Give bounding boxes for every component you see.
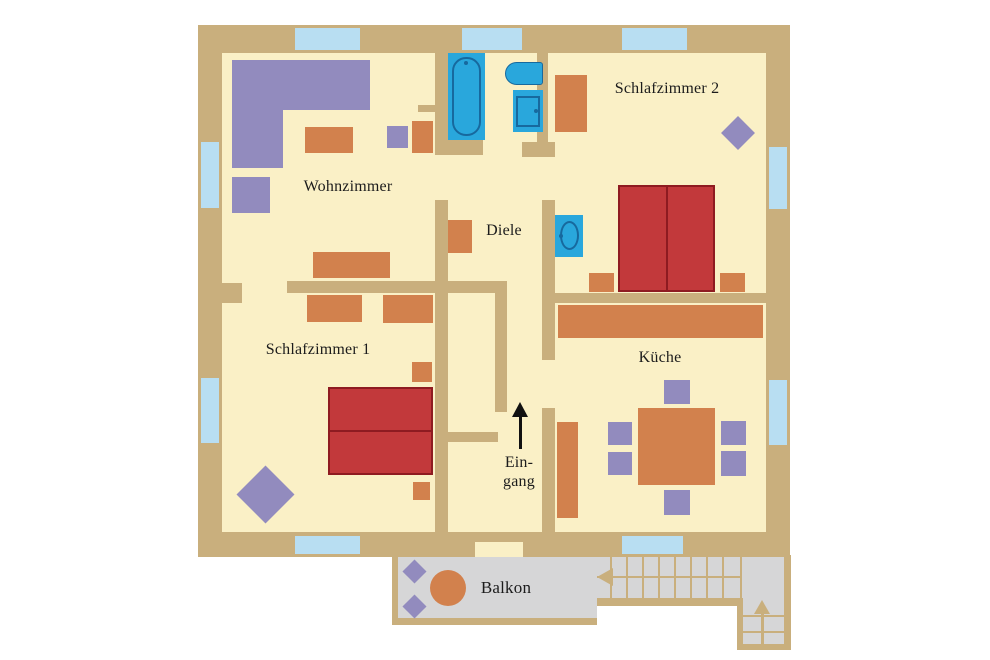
bedroom2-nightstand-left — [589, 273, 614, 292]
tv — [387, 126, 408, 148]
kitchen-counter — [558, 305, 763, 338]
bathtub — [448, 53, 485, 140]
window-top-bedroom2 — [622, 28, 687, 50]
toilet — [505, 62, 543, 85]
wall-bedroom2-west — [542, 200, 555, 303]
bedroom2-wardrobe — [555, 75, 587, 132]
window-left-livingroom — [201, 142, 219, 208]
eingang-line1: Ein- — [503, 453, 535, 472]
outer-wall-right — [766, 25, 790, 557]
wall-bathroom-bottom-left — [443, 140, 483, 155]
stairs-midline — [597, 576, 742, 578]
room-label-schlafzimmer2: Schlafzimmer 2 — [615, 80, 720, 98]
window-left-bedroom1 — [201, 378, 219, 443]
window-bottom-kitchen — [622, 536, 683, 554]
window-top-bathroom — [462, 28, 522, 50]
bedroom2-double-bed — [618, 185, 715, 292]
stairs-direction-arrow-icon — [597, 568, 613, 586]
window-top-livingroom — [295, 28, 360, 50]
floor-plan: Wohnzimmer Schlafzimmer 2 Diele Schlafzi… — [0, 0, 990, 660]
bedroom1-double-bed — [328, 387, 433, 475]
wall-entrance-north — [448, 432, 498, 442]
room-label-balkon: Balkon — [481, 578, 531, 598]
tv-stand — [412, 121, 433, 153]
kitchen-chair-left-bottom — [608, 452, 632, 475]
room-label-wohnzimmer: Wohnzimmer — [304, 178, 393, 196]
room-label-eingang: Ein- gang — [503, 453, 535, 491]
balcony-round-table — [430, 570, 466, 606]
wall-closet-east — [495, 293, 507, 412]
sofa-left-section — [232, 110, 283, 168]
stairs-border-left-vertical — [737, 598, 743, 650]
bedroom2-nightstand-right — [720, 273, 745, 292]
bedroom1-nightstand-bottom — [413, 482, 430, 500]
bedroom2-washbasin — [555, 215, 583, 257]
wall-bedroom1-door-jamb — [222, 283, 242, 303]
kitchen-chair-top — [664, 380, 690, 404]
room-label-schlafzimmer1: Schlafzimmer 1 — [266, 341, 371, 359]
kitchen-table — [638, 408, 715, 485]
balcony-border-bottom — [392, 618, 597, 625]
armchair — [232, 177, 270, 213]
eingang-line2: gang — [503, 472, 535, 491]
wall-bathroom-left — [435, 48, 448, 155]
kitchen-chair-right-top — [721, 421, 746, 445]
bedroom1-dresser-left — [307, 295, 362, 322]
room-label-diele: Diele — [486, 222, 522, 240]
window-right-bedroom2 — [769, 147, 787, 209]
bedroom1-nightstand-top — [412, 362, 432, 382]
bathroom-sink — [513, 90, 543, 132]
stairs-vertical-midline — [761, 612, 764, 644]
wall-kitchen-west-lower — [542, 408, 555, 532]
stairs-border-right — [784, 555, 791, 650]
stairs-border-bottom-horizontal — [597, 598, 743, 606]
hallway-cabinet — [448, 220, 472, 253]
kitchen-chair-right-bottom — [721, 451, 746, 476]
wall-bathroom-bottom-right — [522, 142, 555, 157]
stairs-border-bottom-vertical — [737, 644, 791, 650]
wall-hallway-west — [435, 200, 448, 532]
balcony-door-opening — [475, 542, 523, 557]
wall-kitchen-west-upper — [542, 303, 555, 360]
coffee-table — [305, 127, 353, 153]
entrance-arrow-icon — [510, 402, 530, 450]
window-right-kitchen — [769, 380, 787, 445]
bedroom1-dresser-right — [383, 295, 433, 323]
wall-bathroom-left-stub — [418, 105, 435, 112]
kitchen-chair-left-top — [608, 422, 632, 445]
livingroom-sideboard — [313, 252, 390, 278]
wall-livingroom-bedroom1-divider — [287, 281, 507, 293]
room-label-kueche: Küche — [639, 349, 682, 367]
window-bottom-bedroom1 — [295, 536, 360, 554]
kitchen-tall-cabinet — [557, 422, 578, 518]
stairs-up-arrow-icon — [754, 600, 770, 614]
kitchen-chair-bottom — [664, 490, 690, 515]
sofa-top-section — [232, 60, 370, 110]
wall-bedroom2-south — [542, 293, 766, 303]
outer-wall-left — [198, 25, 222, 557]
